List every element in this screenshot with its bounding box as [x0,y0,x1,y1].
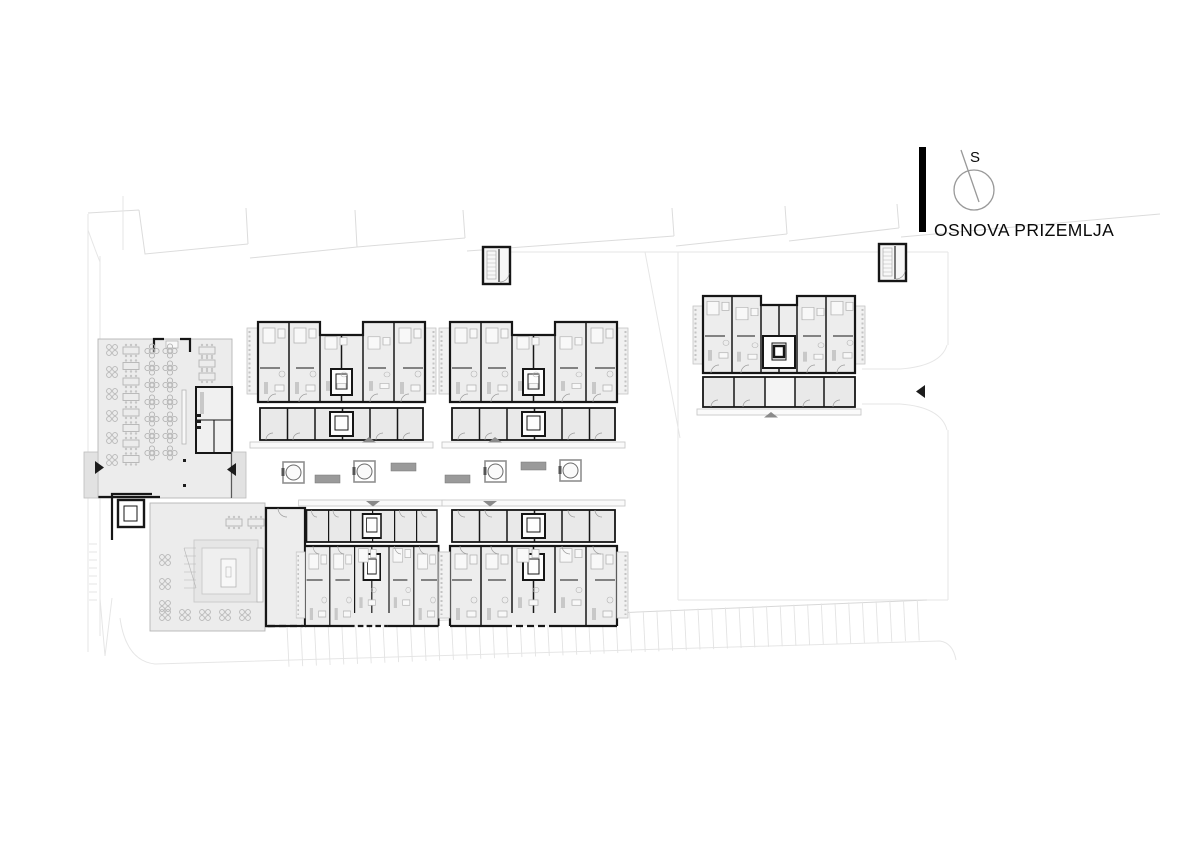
service-shaft [118,500,144,527]
bench [521,462,546,470]
entrance-arrow-left [916,385,925,398]
passage-canopy-pad-west [84,452,98,498]
tree-planter [353,461,376,482]
garden-terrace [150,503,265,631]
passage-canopy-pad-east [232,452,246,498]
stair-kiosk-east [879,244,906,281]
drawing-title: OSNOVA PRIZEMLJA [934,220,1114,241]
terrace-stage [221,559,236,587]
title-divider-bar [919,147,926,232]
bench [315,475,340,483]
site-plan-drawing [0,0,1191,842]
pedestrian-walkway-furniture [282,460,582,483]
stair-kiosk-west [483,247,510,284]
title-block: S OSNOVA PRIZEMLJA [919,147,1179,242]
floor-plan-sheet: S OSNOVA PRIZEMLJA [0,0,1191,842]
tree-planter [282,462,305,483]
compass-north-label: S [970,149,980,166]
apartment-block-north-east [439,322,628,448]
bench [391,463,416,471]
tree-planter [559,460,582,481]
apartment-block-south-west [296,500,447,626]
tree-planter [484,461,507,482]
apartment-building-east [693,296,865,415]
apartment-block-south-east [439,500,628,626]
north-compass: S [937,145,1027,220]
bench [445,475,470,483]
apartment-block-north-west [247,322,436,448]
terrace-bar-counter [257,548,263,602]
